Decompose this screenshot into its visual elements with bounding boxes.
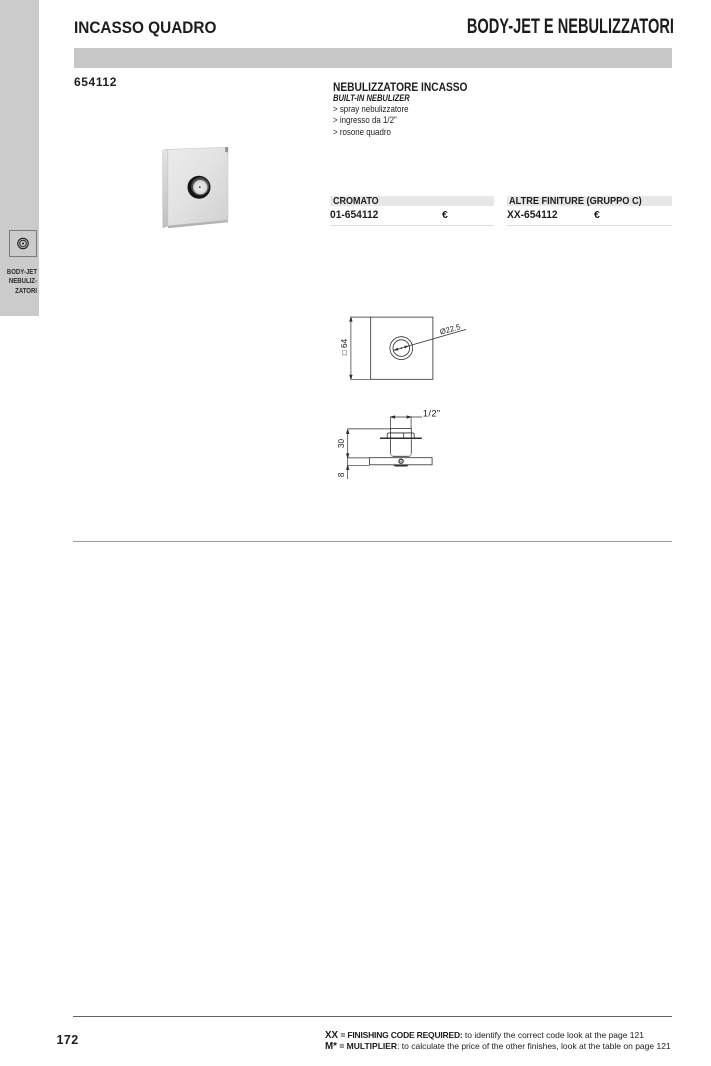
svg-text:8: 8 [337, 472, 346, 477]
svg-text:1/2”: 1/2” [423, 408, 441, 419]
svg-text:□ 64: □ 64 [340, 338, 349, 355]
svg-text:30: 30 [337, 439, 346, 449]
